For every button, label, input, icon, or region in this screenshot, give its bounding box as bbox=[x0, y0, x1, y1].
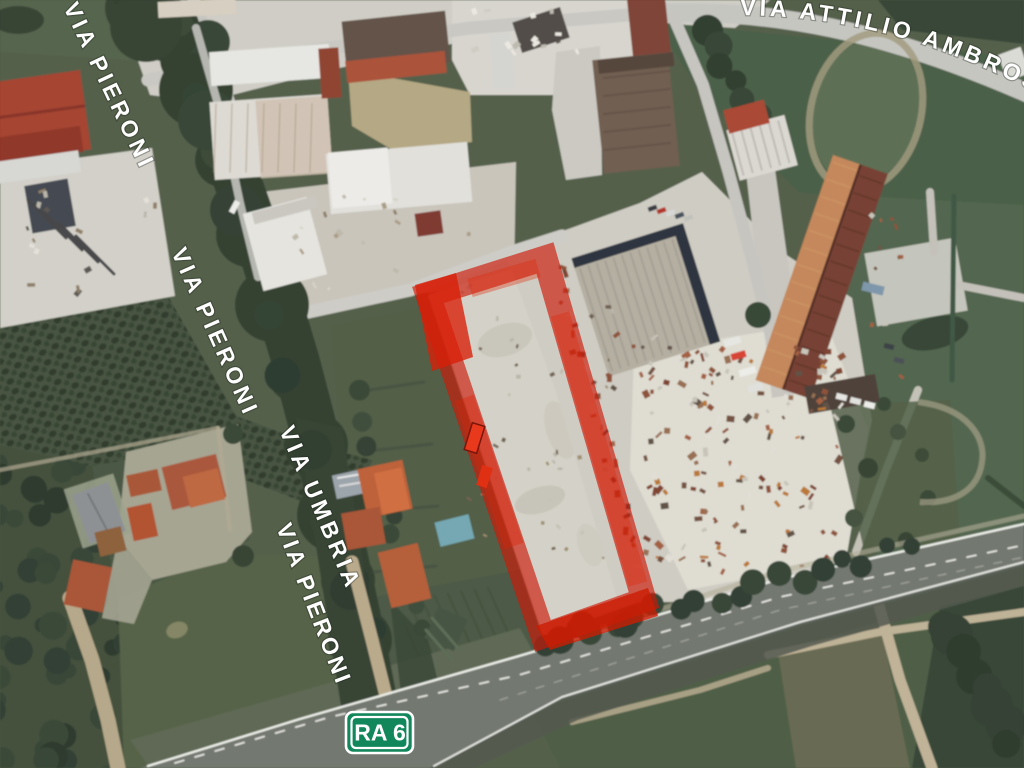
svg-text:RA 6: RA 6 bbox=[354, 720, 406, 746]
